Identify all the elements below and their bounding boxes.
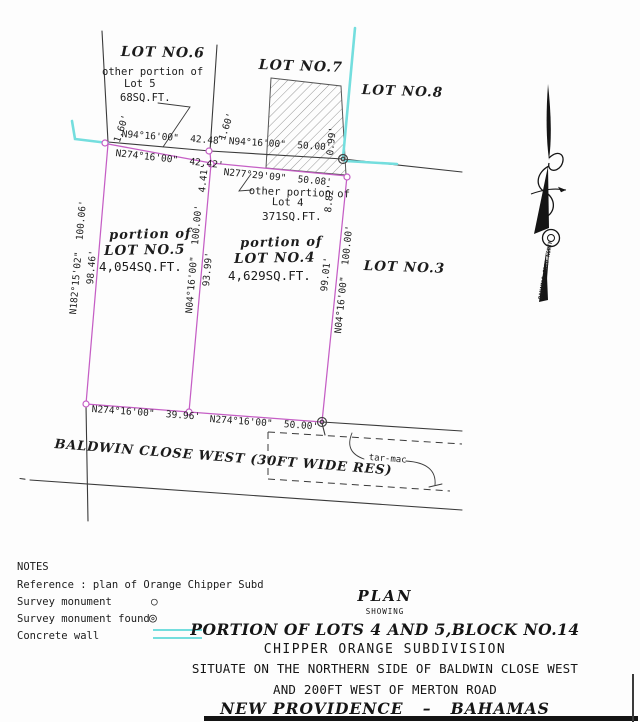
title-line3: SITUATE ON THE NORTHERN SIDE OF BALDWIN … [165, 663, 605, 676]
notes-title: NOTES [17, 562, 49, 573]
other-portion-lot5-area: 68SQ.FT. [120, 93, 171, 104]
lot6-label: LOT NO.6 [121, 45, 205, 60]
monument-symbol: ○ [151, 596, 158, 607]
sheet-border-bottom [204, 716, 638, 721]
lot7-label: LOT NO.7 [259, 58, 344, 75]
lot5-portion-line2: LOT NO.5 [104, 244, 186, 259]
survey-plan-sheet: LOT NO.6 LOT NO.7 LOT NO.8 LOT NO.3 othe… [0, 0, 640, 722]
lot4-portion-line2: LOT NO.4 [234, 252, 316, 267]
lot5-area-label: 4,054SQ.FT. [99, 261, 182, 274]
lot4-portion-line1: portion of [240, 236, 323, 250]
lot3-label: LOT NO.3 [364, 260, 446, 276]
notes-concrete-wall: Concrete wall [17, 631, 99, 642]
notes-survey-monument-found: Survey monument found [17, 614, 150, 625]
lot5-portion-line1: portion of [109, 228, 192, 242]
other-portion-lot5-line1: other portion of [102, 67, 203, 78]
title-line1: PORTION OF LOTS 4 AND 5,BLOCK NO.14 [165, 622, 605, 638]
notes-survey-monument: Survey monument [17, 597, 112, 608]
sheet-border-right [632, 674, 634, 722]
monument-found-symbol: ◎ [149, 612, 157, 625]
title-line5: NEW PROVIDENCE – BAHAMAS [165, 701, 605, 717]
title-showing: SHOWING [165, 608, 605, 616]
other-portion-lot4-area: 371SQ.FT. [262, 211, 322, 222]
other-portion-lot5-line2: Lot 5 [124, 79, 156, 90]
other-portion-lot4-line2: Lot 4 [272, 197, 304, 209]
lot8-label: LOT NO.8 [362, 84, 444, 100]
title-plan: PLAN [165, 589, 605, 604]
title-line2: CHIPPER ORANGE SUBDIVISION [165, 643, 605, 656]
title-line4: AND 200FT WEST OF MERTON ROAD [165, 684, 605, 697]
lot4-area-label: 4,629SQ.FT. [228, 270, 311, 283]
